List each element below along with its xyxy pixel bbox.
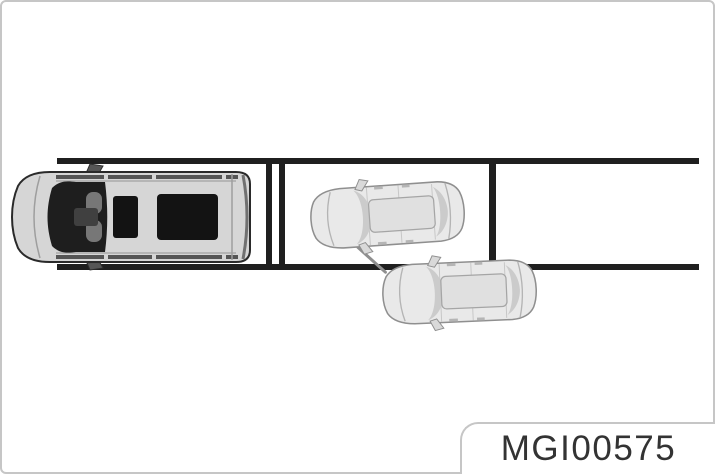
exiting-car-top-view-icon — [377, 243, 544, 340]
figure-code-box: MGI00575 — [460, 422, 715, 474]
parking-stall-divider-left-b — [279, 158, 285, 270]
sunroof-rear — [157, 194, 218, 240]
manual-illustration: MGI00575 — [0, 0, 715, 474]
ego-minivan-top-view-icon — [10, 156, 252, 278]
dashboard-silhouette — [74, 208, 98, 226]
figure-code: MGI00575 — [501, 429, 676, 469]
parking-stall-divider-left-a — [266, 158, 272, 270]
sunroof-front — [113, 196, 138, 238]
